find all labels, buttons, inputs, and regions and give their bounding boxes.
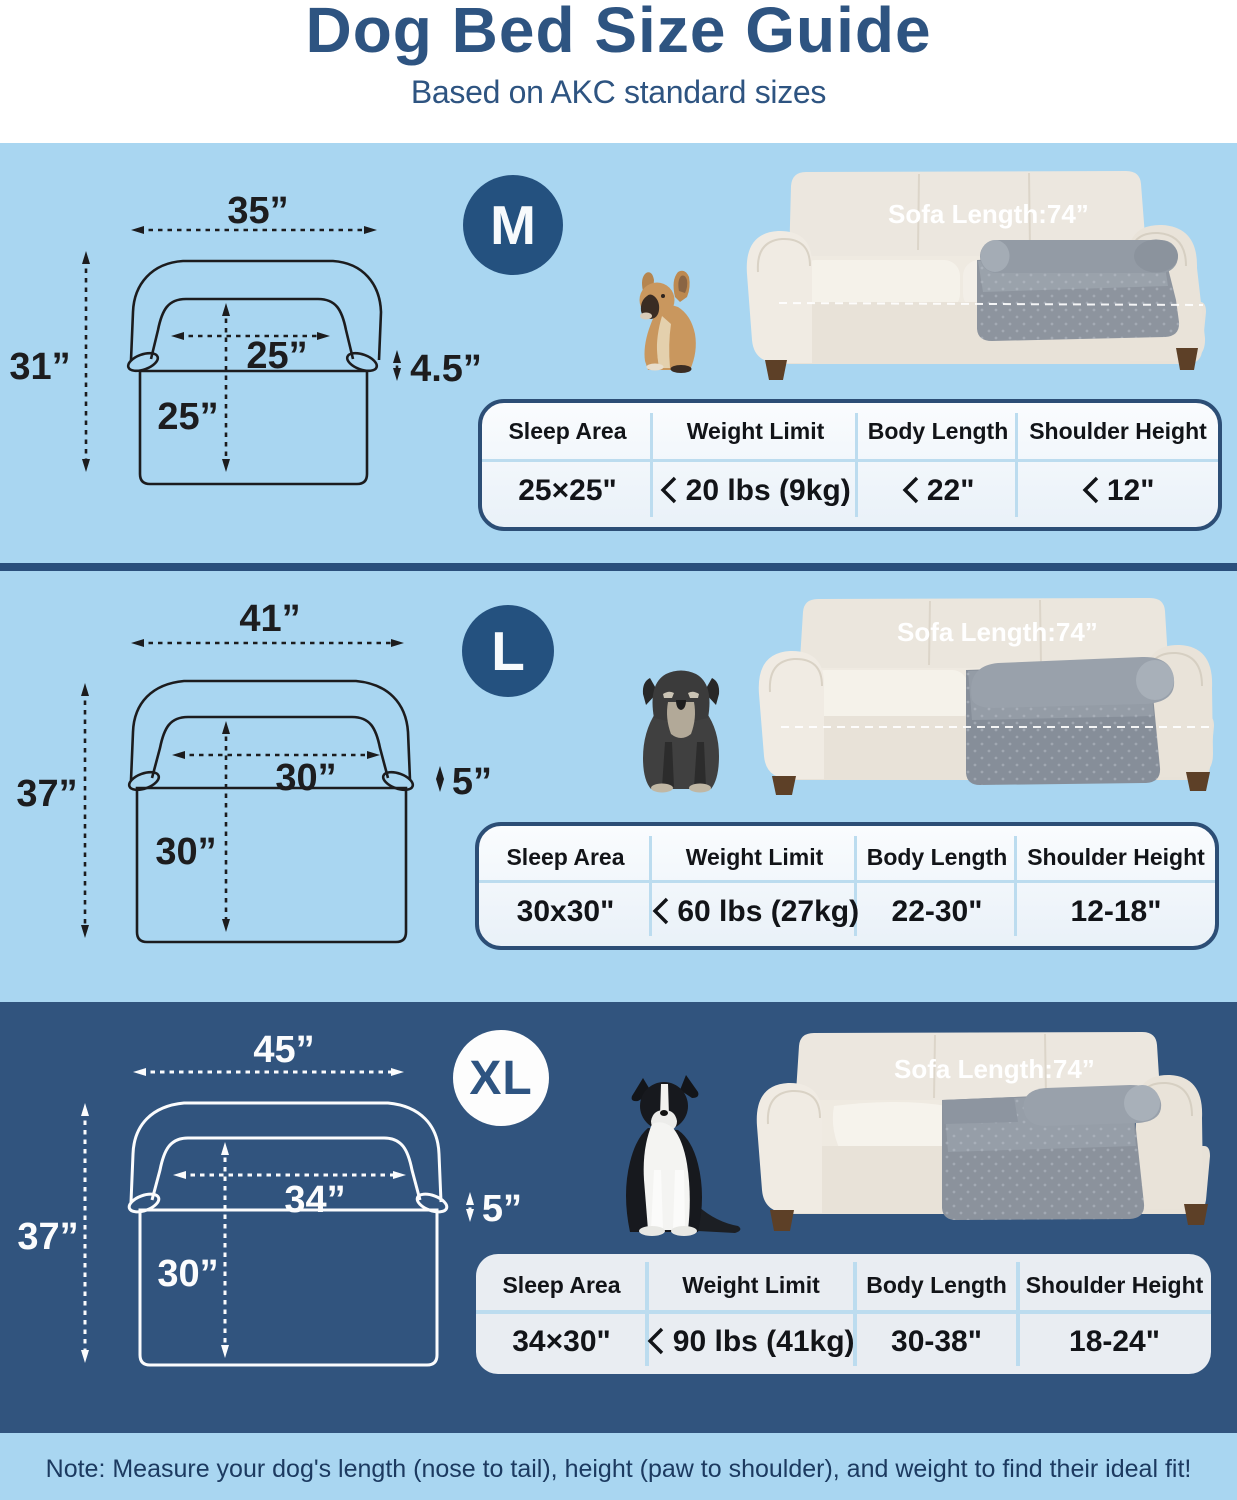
svg-text:30”: 30” [155, 831, 216, 873]
svg-text:34”: 34” [284, 1179, 345, 1221]
svg-text:5”: 5” [482, 1188, 522, 1230]
svg-text:4.5”: 4.5” [410, 348, 482, 390]
svg-text:30”: 30” [157, 1253, 218, 1295]
svg-text:35”: 35” [227, 190, 288, 232]
svg-text:37”: 37” [17, 1216, 78, 1258]
svg-text:45”: 45” [253, 1029, 314, 1071]
svg-text:30”: 30” [275, 757, 336, 799]
svg-text:25”: 25” [157, 396, 218, 438]
svg-text:25”: 25” [246, 335, 307, 377]
svg-text:5”: 5” [452, 761, 492, 803]
svg-text:41”: 41” [239, 598, 300, 640]
svg-text:31”: 31” [9, 346, 70, 388]
svg-text:37”: 37” [16, 773, 77, 815]
